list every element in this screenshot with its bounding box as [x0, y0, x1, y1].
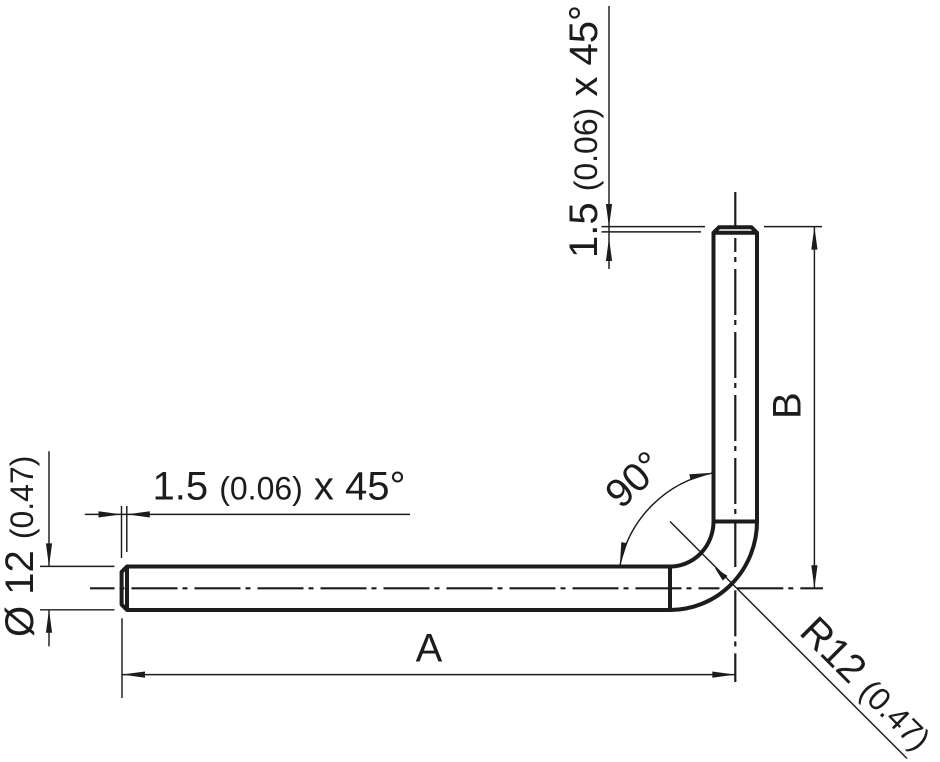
svg-text:1.5 (0.06) x 45°: 1.5 (0.06) x 45° [562, 5, 606, 258]
svg-text:B: B [766, 392, 810, 419]
svg-text:A: A [416, 627, 443, 671]
svg-text:Ø 12 (0.47): Ø 12 (0.47) [0, 456, 42, 637]
svg-text:1.5 (0.06) x 45°: 1.5 (0.06) x 45° [153, 465, 406, 509]
